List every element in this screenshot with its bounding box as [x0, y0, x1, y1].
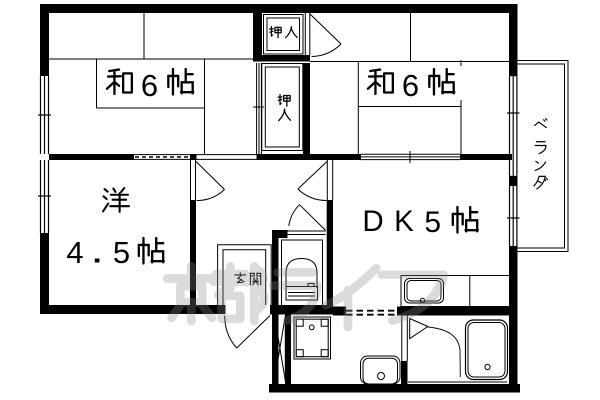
svg-text:6: 6	[141, 68, 158, 103]
svg-text:6: 6	[402, 68, 419, 103]
svg-text:4: 4	[66, 235, 83, 270]
svg-text:D: D	[362, 205, 383, 238]
svg-text:5: 5	[113, 235, 130, 270]
svg-text:5: 5	[424, 206, 441, 239]
svg-text:K: K	[394, 205, 414, 238]
